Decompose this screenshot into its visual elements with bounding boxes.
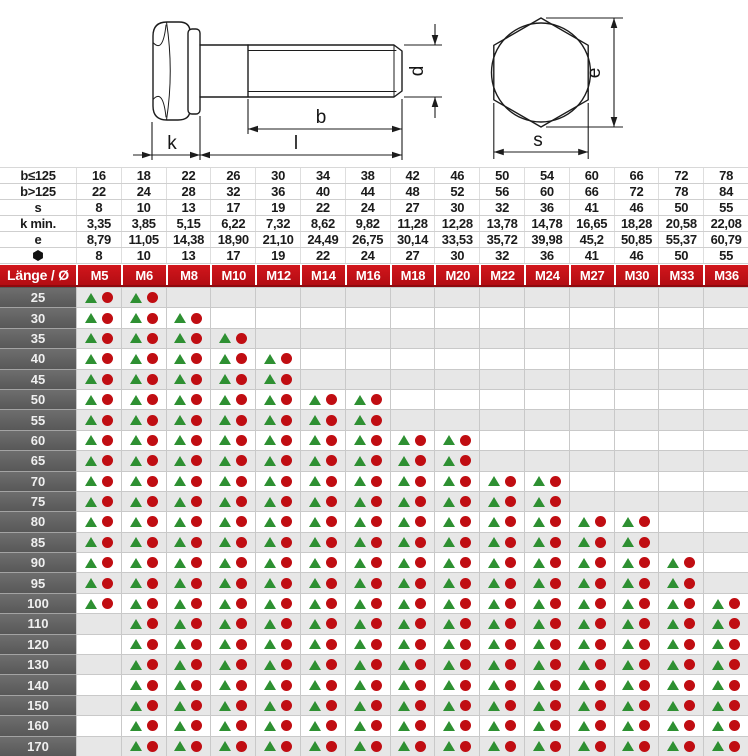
- table-row: 150: [0, 695, 748, 715]
- length-label: 85: [0, 532, 76, 552]
- availability-triangle-icon: [130, 476, 142, 486]
- availability-triangle-icon: [533, 558, 545, 568]
- availability-triangle-icon: [398, 721, 410, 731]
- spec-value: 39,98: [524, 232, 569, 247]
- availability-triangle-icon: [130, 660, 142, 670]
- availability-triangle-icon: [174, 395, 186, 405]
- matrix-cell: [121, 287, 166, 307]
- availability-triangle-icon: [264, 497, 276, 507]
- matrix-cell: [479, 430, 524, 450]
- table-row: 120: [0, 634, 748, 654]
- table-row: 35: [0, 328, 748, 348]
- spec-value: 24: [121, 184, 166, 199]
- availability-circle-icon: [684, 598, 695, 609]
- availability-triangle-icon: [533, 497, 545, 507]
- length-label: 30: [0, 307, 76, 327]
- matrix-cell: [390, 532, 435, 552]
- availability-circle-icon: [505, 557, 516, 568]
- matrix-cell: [300, 532, 345, 552]
- availability-triangle-icon: [130, 333, 142, 343]
- availability-circle-icon: [729, 618, 740, 629]
- matrix-cell: [76, 593, 121, 613]
- availability-triangle-icon: [443, 701, 455, 711]
- spec-value: 19: [255, 200, 300, 215]
- availability-triangle-icon: [622, 599, 634, 609]
- length-label: 170: [0, 736, 76, 756]
- availability-circle-icon: [371, 496, 382, 507]
- availability-triangle-icon: [398, 701, 410, 711]
- availability-triangle-icon: [174, 619, 186, 629]
- availability-triangle-icon: [219, 680, 231, 690]
- matrix-cell: [76, 634, 121, 654]
- availability-triangle-icon: [130, 578, 142, 588]
- availability-triangle-icon: [174, 354, 186, 364]
- matrix-cell: [76, 328, 121, 348]
- spec-value: 22: [300, 248, 345, 263]
- availability-circle-icon: [639, 639, 650, 650]
- availability-circle-icon: [729, 700, 740, 711]
- availability-circle-icon: [415, 618, 426, 629]
- matrix-cell: [703, 511, 748, 531]
- availability-triangle-icon: [309, 435, 321, 445]
- availability-circle-icon: [415, 700, 426, 711]
- availability-triangle-icon: [264, 578, 276, 588]
- availability-circle-icon: [595, 618, 606, 629]
- matrix-cell: [524, 471, 569, 491]
- availability-triangle-icon: [174, 476, 186, 486]
- availability-triangle-icon: [622, 517, 634, 527]
- availability-circle-icon: [460, 639, 471, 650]
- matrix-cell: [166, 634, 211, 654]
- matrix-cell: [300, 634, 345, 654]
- column-header-m36: M36: [705, 265, 748, 285]
- availability-triangle-icon: [174, 701, 186, 711]
- availability-triangle-icon: [219, 660, 231, 670]
- availability-triangle-icon: [443, 558, 455, 568]
- availability-triangle-icon: [488, 741, 500, 751]
- length-label: 120: [0, 634, 76, 654]
- availability-circle-icon: [684, 639, 695, 650]
- matrix-cell: [345, 674, 390, 694]
- availability-triangle-icon: [264, 680, 276, 690]
- column-header-m18: M18: [392, 265, 435, 285]
- availability-triangle-icon: [264, 721, 276, 731]
- spec-value: 66: [614, 168, 659, 183]
- availability-triangle-icon: [398, 680, 410, 690]
- availability-triangle-icon: [174, 374, 186, 384]
- matrix-cell: [121, 328, 166, 348]
- availability-triangle-icon: [309, 619, 321, 629]
- availability-triangle-icon: [488, 619, 500, 629]
- matrix-cell: [121, 593, 166, 613]
- matrix-cell: [614, 532, 659, 552]
- availability-triangle-icon: [174, 578, 186, 588]
- availability-triangle-icon: [85, 415, 97, 425]
- availability-circle-icon: [102, 415, 113, 426]
- spec-value: 72: [614, 184, 659, 199]
- matrix-cell: [166, 430, 211, 450]
- availability-triangle-icon: [264, 374, 276, 384]
- matrix-cell: [524, 715, 569, 735]
- matrix-cell: [658, 593, 703, 613]
- availability-circle-icon: [415, 659, 426, 670]
- matrix-cell: [210, 348, 255, 368]
- availability-circle-icon: [460, 516, 471, 527]
- availability-triangle-icon: [309, 456, 321, 466]
- availability-triangle-icon: [219, 701, 231, 711]
- availability-circle-icon: [281, 394, 292, 405]
- availability-triangle-icon: [398, 558, 410, 568]
- matrix-cell: [703, 572, 748, 592]
- matrix-cell: [658, 450, 703, 470]
- availability-circle-icon: [505, 516, 516, 527]
- availability-circle-icon: [281, 680, 292, 691]
- availability-circle-icon: [415, 435, 426, 446]
- availability-triangle-icon: [130, 639, 142, 649]
- availability-triangle-icon: [354, 497, 366, 507]
- availability-circle-icon: [191, 700, 202, 711]
- availability-triangle-icon: [219, 558, 231, 568]
- matrix-cell: [121, 430, 166, 450]
- availability-triangle-icon: [219, 599, 231, 609]
- matrix-cell: [390, 450, 435, 470]
- availability-circle-icon: [460, 680, 471, 691]
- availability-circle-icon: [236, 537, 247, 548]
- matrix-cell: [255, 450, 300, 470]
- matrix-cell: [569, 307, 614, 327]
- matrix-cell: [658, 736, 703, 756]
- availability-triangle-icon: [130, 395, 142, 405]
- matrix-cell: [121, 369, 166, 389]
- availability-triangle-icon: [578, 619, 590, 629]
- spec-value: 60: [524, 184, 569, 199]
- matrix-cell: [255, 511, 300, 531]
- availability-triangle-icon: [578, 741, 590, 751]
- availability-circle-icon: [236, 639, 247, 650]
- matrix-cell: [121, 654, 166, 674]
- availability-triangle-icon: [622, 578, 634, 588]
- table-row: 65: [0, 450, 748, 470]
- availability-circle-icon: [729, 680, 740, 691]
- spec-value: 56: [479, 184, 524, 199]
- availability-circle-icon: [236, 516, 247, 527]
- availability-circle-icon: [729, 659, 740, 670]
- matrix-cell: [166, 532, 211, 552]
- spec-value: 17: [210, 248, 255, 263]
- column-header-m33: M33: [660, 265, 703, 285]
- spec-value: 30: [434, 248, 479, 263]
- availability-triangle-icon: [354, 415, 366, 425]
- matrix-cell: [345, 613, 390, 633]
- spec-value: 3,35: [76, 216, 121, 231]
- availability-circle-icon: [191, 578, 202, 589]
- availability-circle-icon: [281, 374, 292, 385]
- availability-triangle-icon: [398, 619, 410, 629]
- matrix-cell: [434, 430, 479, 450]
- spec-value: 36: [524, 200, 569, 215]
- availability-triangle-icon: [443, 741, 455, 751]
- matrix-cell: [658, 369, 703, 389]
- spec-value: 54: [524, 168, 569, 183]
- availability-triangle-icon: [85, 497, 97, 507]
- availability-triangle-icon: [533, 639, 545, 649]
- column-header-m14: M14: [302, 265, 345, 285]
- availability-circle-icon: [371, 435, 382, 446]
- availability-circle-icon: [550, 537, 561, 548]
- availability-triangle-icon: [130, 741, 142, 751]
- matrix-cell: [569, 511, 614, 531]
- matrix-cell: [345, 307, 390, 327]
- availability-circle-icon: [460, 618, 471, 629]
- matrix-cell: [210, 450, 255, 470]
- availability-triangle-icon: [309, 680, 321, 690]
- matrix-cell: [255, 409, 300, 429]
- matrix-cell: [210, 328, 255, 348]
- spec-value: 48: [390, 184, 435, 199]
- availability-triangle-icon: [219, 476, 231, 486]
- matrix-cell: [76, 715, 121, 735]
- spec-value: 3,85: [121, 216, 166, 231]
- spec-value: 22: [300, 200, 345, 215]
- spec-value: 22: [166, 168, 211, 183]
- matrix-cell: [703, 532, 748, 552]
- matrix-cell: [300, 572, 345, 592]
- availability-triangle-icon: [667, 558, 679, 568]
- matrix-cell: [390, 613, 435, 633]
- availability-circle-icon: [371, 659, 382, 670]
- availability-circle-icon: [371, 516, 382, 527]
- availability-triangle-icon: [488, 517, 500, 527]
- availability-triangle-icon: [264, 415, 276, 425]
- column-header-m22: M22: [481, 265, 524, 285]
- spec-value: 20,58: [658, 216, 703, 231]
- matrix-cell: [255, 348, 300, 368]
- matrix-cell: [76, 491, 121, 511]
- column-header-m8: M8: [168, 265, 211, 285]
- matrix-cell: [479, 532, 524, 552]
- matrix-cell: [166, 695, 211, 715]
- availability-circle-icon: [595, 741, 606, 752]
- matrix-cell: [569, 287, 614, 307]
- availability-triangle-icon: [622, 619, 634, 629]
- availability-triangle-icon: [219, 639, 231, 649]
- length-label: 95: [0, 572, 76, 592]
- matrix-corner-label: Länge / Ø: [0, 265, 76, 285]
- availability-triangle-icon: [712, 599, 724, 609]
- availability-circle-icon: [595, 598, 606, 609]
- matrix-cell: [569, 613, 614, 633]
- spec-value: 7,32: [255, 216, 300, 231]
- availability-circle-icon: [371, 578, 382, 589]
- table-row: 130: [0, 654, 748, 674]
- length-label: 130: [0, 654, 76, 674]
- matrix-cell: [658, 695, 703, 715]
- availability-triangle-icon: [667, 660, 679, 670]
- availability-circle-icon: [505, 741, 516, 752]
- matrix-cell: [345, 328, 390, 348]
- spec-value: 42: [390, 168, 435, 183]
- matrix-cell: [434, 736, 479, 756]
- spec-row: k min.3,353,855,156,227,328,629,8211,281…: [0, 216, 748, 232]
- spec-value: 10: [121, 248, 166, 263]
- matrix-cell: [76, 307, 121, 327]
- availability-circle-icon: [236, 333, 247, 344]
- matrix-cell: [345, 369, 390, 389]
- matrix-cell: [255, 532, 300, 552]
- matrix-cell: [614, 348, 659, 368]
- availability-circle-icon: [415, 598, 426, 609]
- page: d b l k e s b≤12516182226303438424650546…: [0, 0, 748, 756]
- availability-circle-icon: [684, 557, 695, 568]
- availability-circle-icon: [326, 680, 337, 691]
- matrix-cell: [345, 715, 390, 735]
- matrix-cell: [434, 328, 479, 348]
- availability-triangle-icon: [443, 619, 455, 629]
- availability-circle-icon: [281, 720, 292, 731]
- availability-triangle-icon: [354, 517, 366, 527]
- availability-triangle-icon: [622, 701, 634, 711]
- bolt-side-view: [153, 22, 402, 120]
- spec-value: 30,14: [390, 232, 435, 247]
- availability-circle-icon: [639, 578, 650, 589]
- availability-triangle-icon: [130, 354, 142, 364]
- spec-value: 72: [658, 168, 703, 183]
- spec-row: e8,7911,0514,3818,9021,1024,4926,7530,14…: [0, 232, 748, 248]
- availability-triangle-icon: [488, 680, 500, 690]
- availability-triangle-icon: [712, 680, 724, 690]
- availability-triangle-icon: [533, 619, 545, 629]
- availability-triangle-icon: [578, 517, 590, 527]
- availability-circle-icon: [191, 415, 202, 426]
- availability-circle-icon: [505, 496, 516, 507]
- length-label: 90: [0, 552, 76, 572]
- availability-triangle-icon: [398, 741, 410, 751]
- availability-circle-icon: [415, 741, 426, 752]
- spec-value: 46: [614, 248, 659, 263]
- spec-row: b>125222428323640444852566066727884: [0, 184, 748, 200]
- matrix-cell: [300, 593, 345, 613]
- matrix-cell: [255, 654, 300, 674]
- matrix-cell: [255, 369, 300, 389]
- availability-triangle-icon: [712, 639, 724, 649]
- availability-triangle-icon: [85, 599, 97, 609]
- availability-circle-icon: [147, 455, 158, 466]
- matrix-cell: [703, 715, 748, 735]
- matrix-cell: [524, 511, 569, 531]
- spec-row-label: b≤125: [0, 168, 76, 183]
- availability-circle-icon: [281, 598, 292, 609]
- matrix-cell: [658, 307, 703, 327]
- availability-circle-icon: [147, 435, 158, 446]
- matrix-cell: [569, 328, 614, 348]
- availability-triangle-icon: [264, 456, 276, 466]
- availability-triangle-icon: [309, 476, 321, 486]
- availability-circle-icon: [505, 639, 516, 650]
- availability-triangle-icon: [130, 558, 142, 568]
- matrix-cell: [658, 491, 703, 511]
- spec-value: 19: [255, 248, 300, 263]
- matrix-cell: [300, 552, 345, 572]
- availability-circle-icon: [460, 578, 471, 589]
- spec-value: 21,10: [255, 232, 300, 247]
- availability-circle-icon: [371, 557, 382, 568]
- matrix-cell: [434, 389, 479, 409]
- matrix-cell: [434, 593, 479, 613]
- matrix-cell: [390, 593, 435, 613]
- availability-circle-icon: [684, 700, 695, 711]
- spec-value: 55,37: [658, 232, 703, 247]
- availability-triangle-icon: [354, 435, 366, 445]
- spec-value: 13: [166, 200, 211, 215]
- spec-value: 26: [210, 168, 255, 183]
- availability-circle-icon: [460, 741, 471, 752]
- availability-triangle-icon: [533, 721, 545, 731]
- matrix-cell: [255, 287, 300, 307]
- availability-triangle-icon: [398, 660, 410, 670]
- matrix-cell: [524, 674, 569, 694]
- matrix-cell: [614, 328, 659, 348]
- availability-circle-icon: [147, 394, 158, 405]
- availability-circle-icon: [639, 516, 650, 527]
- matrix-cell: [703, 328, 748, 348]
- matrix-cell: [210, 532, 255, 552]
- matrix-cell: [479, 307, 524, 327]
- availability-circle-icon: [191, 374, 202, 385]
- matrix-cell: [524, 491, 569, 511]
- matrix-cell: [255, 552, 300, 572]
- availability-triangle-icon: [130, 721, 142, 731]
- availability-triangle-icon: [488, 476, 500, 486]
- availability-circle-icon: [236, 455, 247, 466]
- availability-circle-icon: [460, 700, 471, 711]
- availability-circle-icon: [326, 639, 337, 650]
- spec-value: 8: [76, 248, 121, 263]
- matrix-cell: [614, 654, 659, 674]
- matrix-cell: [703, 695, 748, 715]
- spec-value: 22: [76, 184, 121, 199]
- size-matrix: Länge / ØM5M6M8M10M12M14M16M18M20M22M24M…: [0, 264, 748, 756]
- matrix-cell: [166, 328, 211, 348]
- availability-circle-icon: [550, 639, 561, 650]
- matrix-cell: [300, 715, 345, 735]
- matrix-cell: [524, 430, 569, 450]
- availability-triangle-icon: [354, 741, 366, 751]
- availability-circle-icon: [147, 476, 158, 487]
- availability-triangle-icon: [85, 558, 97, 568]
- availability-circle-icon: [236, 618, 247, 629]
- spec-row-label: s: [0, 200, 76, 215]
- matrix-cell: [524, 409, 569, 429]
- matrix-cell: [390, 328, 435, 348]
- availability-circle-icon: [191, 639, 202, 650]
- matrix-cell: [121, 450, 166, 470]
- matrix-cell: [121, 389, 166, 409]
- matrix-cell: [166, 450, 211, 470]
- availability-circle-icon: [326, 394, 337, 405]
- availability-circle-icon: [371, 680, 382, 691]
- availability-triangle-icon: [264, 395, 276, 405]
- matrix-cell: [569, 369, 614, 389]
- availability-circle-icon: [326, 496, 337, 507]
- matrix-cell: [166, 736, 211, 756]
- availability-triangle-icon: [488, 701, 500, 711]
- availability-circle-icon: [191, 516, 202, 527]
- matrix-cell: [345, 409, 390, 429]
- availability-triangle-icon: [488, 660, 500, 670]
- availability-triangle-icon: [85, 354, 97, 364]
- dim-label-s: s: [533, 130, 543, 151]
- availability-circle-icon: [236, 741, 247, 752]
